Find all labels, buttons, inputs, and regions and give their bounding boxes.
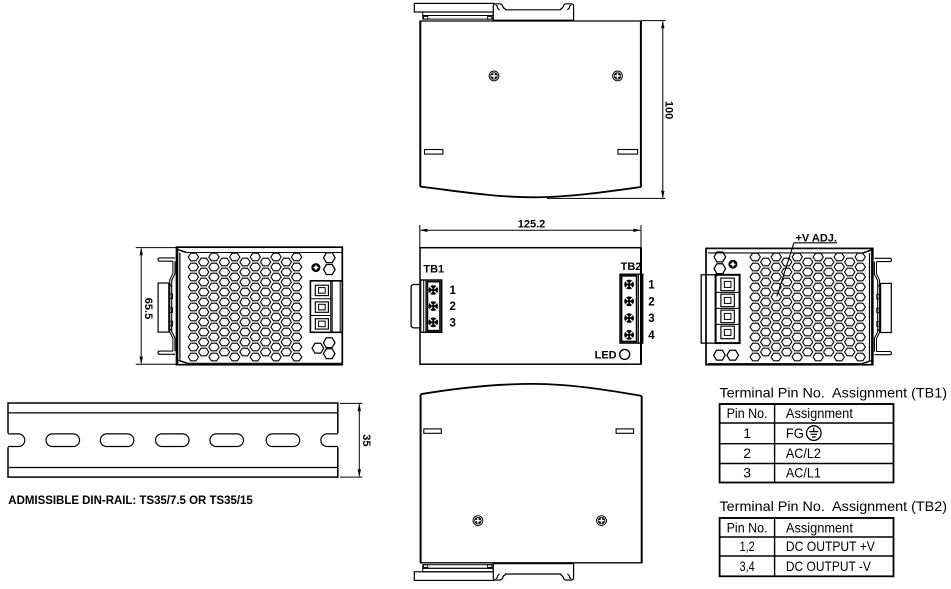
svg-text:ADMISSIBLE DIN-RAIL: TS35/7.5: ADMISSIBLE DIN-RAIL: TS35/7.5 OR TS35/15 — [8, 493, 253, 507]
svg-text:Assignment: Assignment — [786, 519, 853, 535]
svg-text:AC/L2: AC/L2 — [786, 445, 821, 461]
svg-text:3: 3 — [743, 464, 751, 480]
svg-text:DC OUTPUT +V: DC OUTPUT +V — [786, 538, 876, 554]
svg-text:1,2: 1,2 — [740, 538, 755, 554]
svg-text:TB1: TB1 — [423, 264, 444, 276]
svg-text:AC/L1: AC/L1 — [786, 464, 821, 480]
svg-text:35: 35 — [360, 434, 372, 446]
svg-text:1: 1 — [449, 285, 456, 297]
svg-text:Terminal Pin No. Assignment (: Terminal Pin No. Assignment (TB1) — [720, 384, 948, 400]
svg-text:Pin No.: Pin No. — [727, 405, 768, 421]
svg-text:TB2: TB2 — [621, 261, 642, 273]
svg-text:2: 2 — [648, 296, 654, 308]
svg-text:LED: LED — [595, 349, 617, 361]
svg-text:100: 100 — [663, 101, 675, 119]
svg-text:4: 4 — [648, 330, 655, 342]
svg-text:Pin No.: Pin No. — [727, 519, 768, 535]
svg-text:1: 1 — [648, 280, 655, 292]
svg-text:FG: FG — [786, 425, 804, 441]
svg-text:65.5: 65.5 — [142, 298, 154, 319]
svg-text:2: 2 — [449, 301, 455, 313]
svg-text:Assignment: Assignment — [786, 405, 853, 421]
svg-text:3: 3 — [648, 313, 654, 325]
svg-text:1: 1 — [743, 425, 751, 441]
svg-text:Terminal Pin No. Assignment (: Terminal Pin No. Assignment (TB2) — [720, 498, 948, 514]
svg-text:125.2: 125.2 — [518, 219, 546, 231]
svg-text:DC OUTPUT -V: DC OUTPUT -V — [786, 558, 872, 574]
svg-text:3: 3 — [449, 317, 455, 329]
svg-text:3,4: 3,4 — [740, 558, 755, 574]
svg-text:2: 2 — [743, 445, 751, 461]
